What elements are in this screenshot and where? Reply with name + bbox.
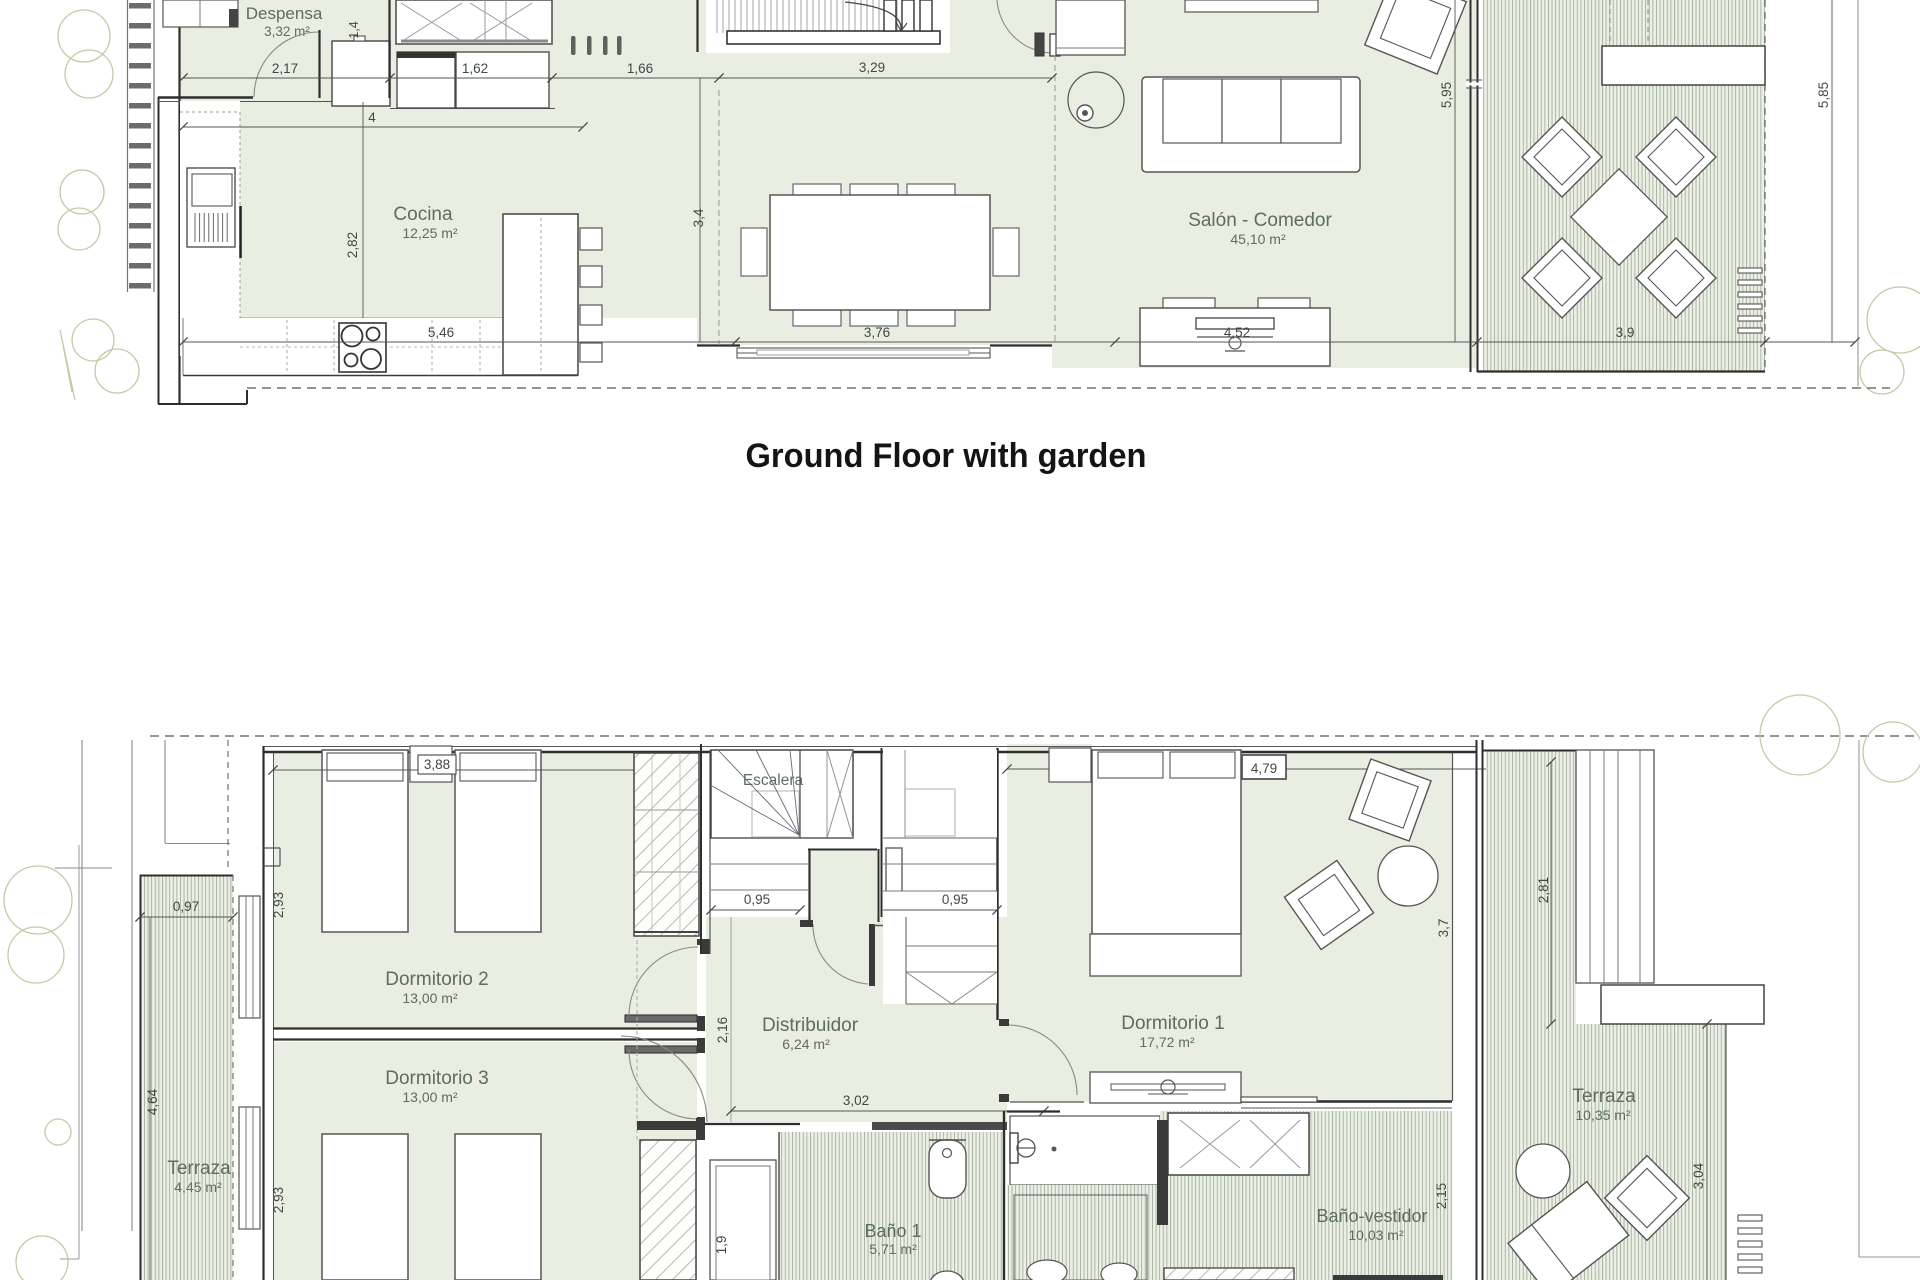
svg-text:2,17: 2,17 [272,61,298,76]
svg-text:Ground Floor with garden: Ground Floor with garden [746,437,1147,475]
svg-text:3,02: 3,02 [843,1093,869,1108]
svg-text:17,72 m²: 17,72 m² [1139,1034,1195,1050]
svg-text:0,97: 0,97 [173,899,199,914]
svg-text:Terraza: Terraza [1572,1086,1636,1107]
svg-text:Dormitorio 1: Dormitorio 1 [1121,1013,1224,1034]
svg-text:4,64: 4,64 [145,1088,160,1115]
svg-text:3,9: 3,9 [1616,325,1635,340]
svg-text:2,15: 2,15 [1434,1183,1449,1209]
svg-text:0,95: 0,95 [942,892,968,907]
svg-text:6,24 m²: 6,24 m² [782,1036,830,1052]
svg-text:3,76: 3,76 [864,325,890,340]
svg-text:10,35 m²: 10,35 m² [1575,1107,1631,1123]
svg-text:3,4: 3,4 [691,208,706,227]
svg-text:5,71 m²: 5,71 m² [869,1241,917,1257]
svg-text:1,4: 1,4 [347,21,361,38]
svg-text:1,9: 1,9 [714,1236,729,1255]
svg-text:Salón - Comedor: Salón - Comedor [1188,210,1332,231]
svg-text:Cocina: Cocina [393,204,453,225]
svg-text:4: 4 [368,110,376,125]
svg-text:0,95: 0,95 [744,892,770,907]
svg-text:3,04: 3,04 [1691,1162,1706,1189]
svg-text:5,85: 5,85 [1816,82,1831,108]
svg-text:1,62: 1,62 [462,61,488,76]
svg-text:2,93: 2,93 [271,892,286,918]
svg-text:Baño 1: Baño 1 [864,1221,921,1241]
svg-text:13,00 m²: 13,00 m² [402,990,458,1006]
svg-text:Despensa: Despensa [246,4,323,23]
svg-text:13,00 m²: 13,00 m² [402,1089,458,1105]
svg-text:1,66: 1,66 [627,61,653,76]
svg-text:10,03 m²: 10,03 m² [1348,1227,1404,1243]
svg-text:2,82: 2,82 [345,232,360,258]
svg-text:4,79: 4,79 [1251,761,1277,776]
svg-text:5,95: 5,95 [1439,82,1454,108]
svg-text:Terraza: Terraza [167,1158,231,1179]
svg-text:3,32 m²: 3,32 m² [264,24,310,39]
svg-text:45,10 m²: 45,10 m² [1230,231,1286,247]
svg-text:Escalera: Escalera [743,772,804,789]
svg-text:2,93: 2,93 [271,1187,286,1213]
svg-text:4,52: 4,52 [1224,325,1250,340]
svg-text:4,45 m²: 4,45 m² [174,1179,222,1195]
svg-text:Baño-vestidor: Baño-vestidor [1316,1206,1427,1226]
svg-text:2,81: 2,81 [1536,877,1551,903]
svg-text:Dormitorio 2: Dormitorio 2 [385,969,488,990]
svg-text:3,88: 3,88 [424,757,450,772]
svg-text:Distribuidor: Distribuidor [762,1015,859,1036]
svg-text:3,29: 3,29 [859,60,885,75]
svg-text:5,46: 5,46 [428,325,454,340]
svg-text:2,16: 2,16 [715,1017,730,1043]
svg-text:Dormitorio 3: Dormitorio 3 [385,1068,488,1089]
svg-text:3,7: 3,7 [1436,919,1451,938]
svg-text:12,25 m²: 12,25 m² [402,225,458,241]
